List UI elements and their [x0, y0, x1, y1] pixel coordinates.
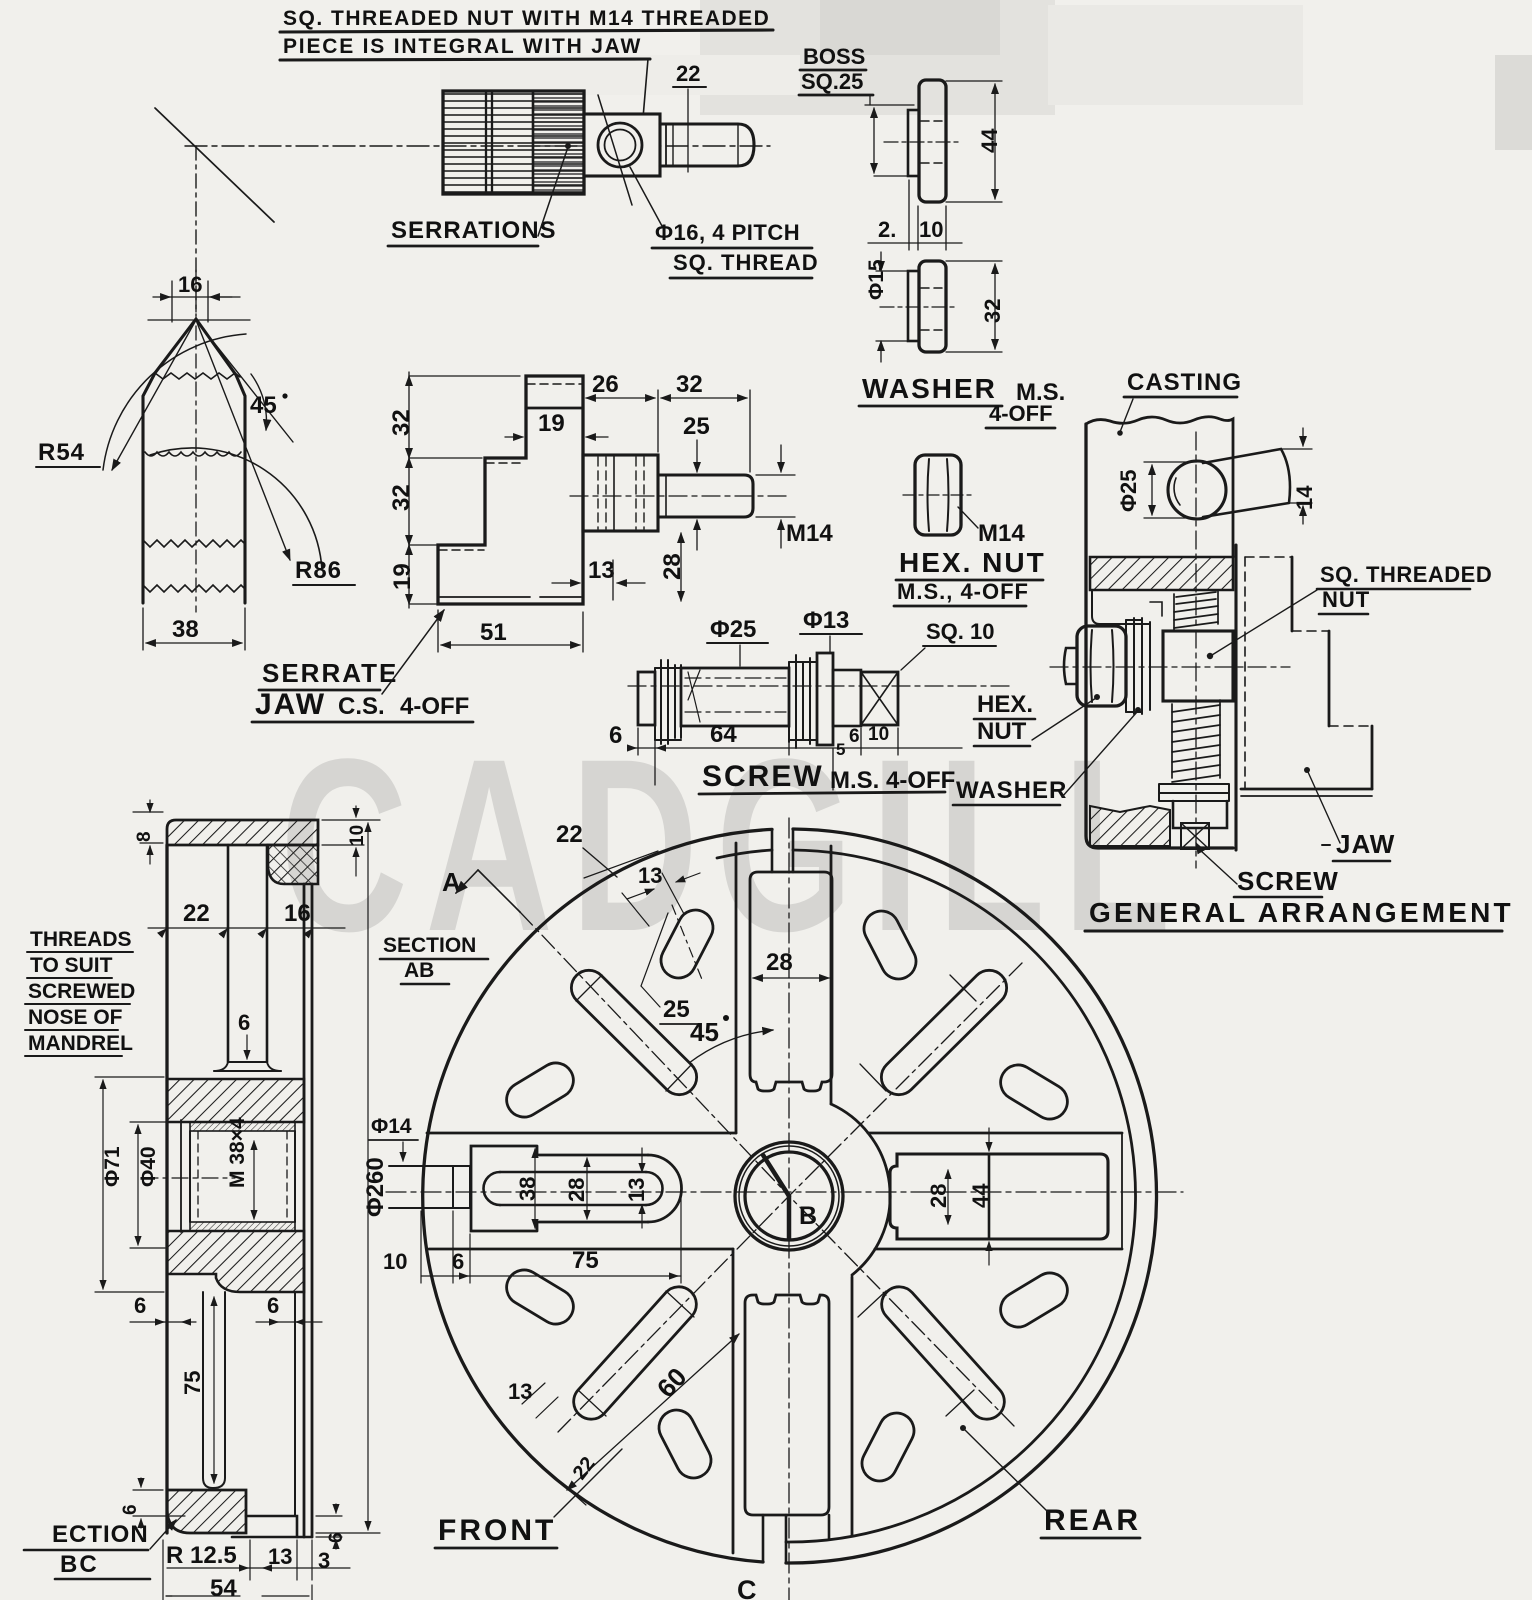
svg-text:4-OFF: 4-OFF [989, 401, 1053, 426]
svg-text:25: 25 [663, 996, 690, 1023]
svg-text:HEX.: HEX. [977, 691, 1033, 718]
svg-text:C.S.: C.S. [338, 693, 385, 720]
svg-text:M 38×4: M 38×4 [226, 1117, 249, 1188]
svg-text:SECTION: SECTION [383, 934, 476, 957]
svg-text:6: 6 [120, 1504, 141, 1515]
svg-text:44: 44 [977, 128, 1002, 153]
svg-text:JAW: JAW [1336, 829, 1395, 859]
svg-text:Φ15: Φ15 [865, 259, 888, 300]
svg-text:64: 64 [710, 721, 737, 748]
svg-text:44: 44 [968, 1183, 993, 1208]
svg-text:6: 6 [452, 1249, 464, 1274]
svg-text:Φ25: Φ25 [710, 616, 756, 643]
svg-text:GENERAL ARRANGEMENT: GENERAL ARRANGEMENT [1089, 897, 1514, 928]
svg-text:C: C [737, 1575, 757, 1600]
svg-text:B: B [799, 1202, 817, 1230]
svg-text:14: 14 [1292, 485, 1317, 510]
svg-text:R54: R54 [38, 439, 85, 466]
svg-text:AB: AB [404, 959, 434, 982]
svg-text:13: 13 [638, 863, 662, 888]
svg-text:10: 10 [919, 217, 943, 242]
svg-text:5: 5 [836, 740, 845, 759]
svg-text:2.: 2. [878, 217, 896, 242]
svg-text:NOSE OF: NOSE OF [28, 1006, 123, 1029]
svg-text:Φ40: Φ40 [137, 1146, 160, 1187]
svg-text:M14: M14 [786, 520, 833, 547]
svg-text:SQ. 10: SQ. 10 [926, 619, 994, 644]
svg-text:8: 8 [134, 831, 155, 842]
svg-text:6: 6 [134, 1293, 146, 1318]
svg-text:SQ. THREADED: SQ. THREADED [1320, 562, 1492, 587]
svg-text:6: 6 [849, 726, 860, 747]
svg-text:4-OFF: 4-OFF [400, 693, 469, 720]
svg-text:Φ14: Φ14 [371, 1115, 412, 1138]
svg-text:NUT: NUT [977, 718, 1027, 745]
svg-text:16: 16 [284, 900, 311, 927]
svg-text:SQ. THREAD: SQ. THREAD [673, 250, 819, 275]
svg-text:M.S., 4-OFF: M.S., 4-OFF [897, 579, 1029, 604]
svg-text:SCREW: SCREW [702, 760, 824, 793]
svg-text:A: A [442, 867, 461, 897]
svg-text:MANDREL: MANDREL [28, 1032, 133, 1055]
svg-text:6: 6 [238, 1010, 250, 1035]
svg-text:Φ13: Φ13 [803, 607, 849, 634]
svg-text:32: 32 [388, 484, 415, 511]
svg-text:SCREWED: SCREWED [28, 980, 135, 1003]
svg-text:JAW: JAW [255, 688, 326, 721]
svg-text:Φ71: Φ71 [101, 1146, 124, 1187]
svg-text:25: 25 [683, 413, 710, 440]
svg-text:WASHER: WASHER [862, 373, 997, 404]
svg-text:75: 75 [180, 1371, 205, 1395]
svg-text:REAR: REAR [1044, 1504, 1141, 1537]
svg-text:32: 32 [388, 409, 415, 436]
svg-text:FRONT: FRONT [438, 1514, 556, 1547]
svg-text:3: 3 [318, 1548, 330, 1573]
svg-text:13: 13 [624, 1178, 649, 1202]
svg-text:28: 28 [564, 1178, 589, 1202]
svg-text:22: 22 [676, 61, 700, 86]
svg-text:28: 28 [766, 949, 793, 976]
svg-text:6: 6 [267, 1293, 279, 1318]
svg-text:22: 22 [556, 821, 583, 848]
svg-text:SQ.25: SQ.25 [801, 69, 863, 94]
svg-text:32: 32 [980, 299, 1005, 323]
svg-text:28: 28 [926, 1184, 951, 1208]
svg-text:BOSS: BOSS [803, 44, 865, 69]
svg-text:SERRATIONS: SERRATIONS [391, 217, 557, 244]
svg-text:NUT: NUT [1322, 587, 1370, 612]
svg-text:16: 16 [178, 272, 202, 297]
svg-text:Φ16, 4 PITCH: Φ16, 4 PITCH [655, 220, 800, 245]
svg-text:CASTING: CASTING [1127, 369, 1242, 396]
svg-text:10: 10 [347, 825, 368, 846]
svg-text:SQ. THREADED NUT WITH M14 T: SQ. THREADED NUT WITH M14 THREADED [283, 7, 770, 30]
svg-text:13: 13 [268, 1544, 292, 1569]
svg-text:13: 13 [588, 557, 615, 584]
svg-text:38: 38 [515, 1177, 540, 1201]
svg-text:Φ25: Φ25 [1116, 469, 1141, 512]
svg-text:28: 28 [659, 553, 686, 580]
svg-text:HEX. NUT: HEX. NUT [899, 547, 1046, 578]
svg-text:10: 10 [868, 724, 889, 745]
svg-text:51: 51 [480, 619, 507, 646]
svg-text:6: 6 [609, 722, 622, 749]
svg-text:PIECE IS INTEGRAL WITH JA: PIECE IS INTEGRAL WITH JAW [283, 35, 642, 58]
svg-text:75: 75 [572, 1247, 599, 1274]
svg-text:ECTION: ECTION [52, 1521, 149, 1548]
svg-text:32: 32 [676, 371, 703, 398]
svg-text:45: 45 [250, 392, 277, 419]
svg-text:R 12.5: R 12.5 [166, 1542, 237, 1569]
svg-text:M.S. 4-OFF: M.S. 4-OFF [830, 767, 955, 794]
svg-text:THREADS: THREADS [30, 928, 132, 951]
svg-text:13: 13 [508, 1379, 532, 1404]
svg-text:BC: BC [60, 1551, 99, 1578]
svg-text:WASHER: WASHER [956, 777, 1067, 804]
svg-text:10: 10 [383, 1249, 407, 1274]
svg-text:R86: R86 [295, 557, 342, 584]
svg-text:38: 38 [172, 616, 199, 643]
svg-text:TO SUIT: TO SUIT [30, 954, 113, 977]
svg-text:22: 22 [183, 900, 210, 927]
svg-text:19: 19 [389, 563, 416, 590]
svg-text:SCREW: SCREW [1237, 866, 1339, 896]
svg-text:SERRATE: SERRATE [262, 658, 398, 688]
svg-text:45: 45 [690, 1017, 719, 1047]
svg-text:Φ260: Φ260 [362, 1157, 389, 1217]
svg-text:M14: M14 [978, 520, 1025, 547]
svg-text:26: 26 [592, 371, 619, 398]
svg-text:19: 19 [538, 410, 565, 437]
